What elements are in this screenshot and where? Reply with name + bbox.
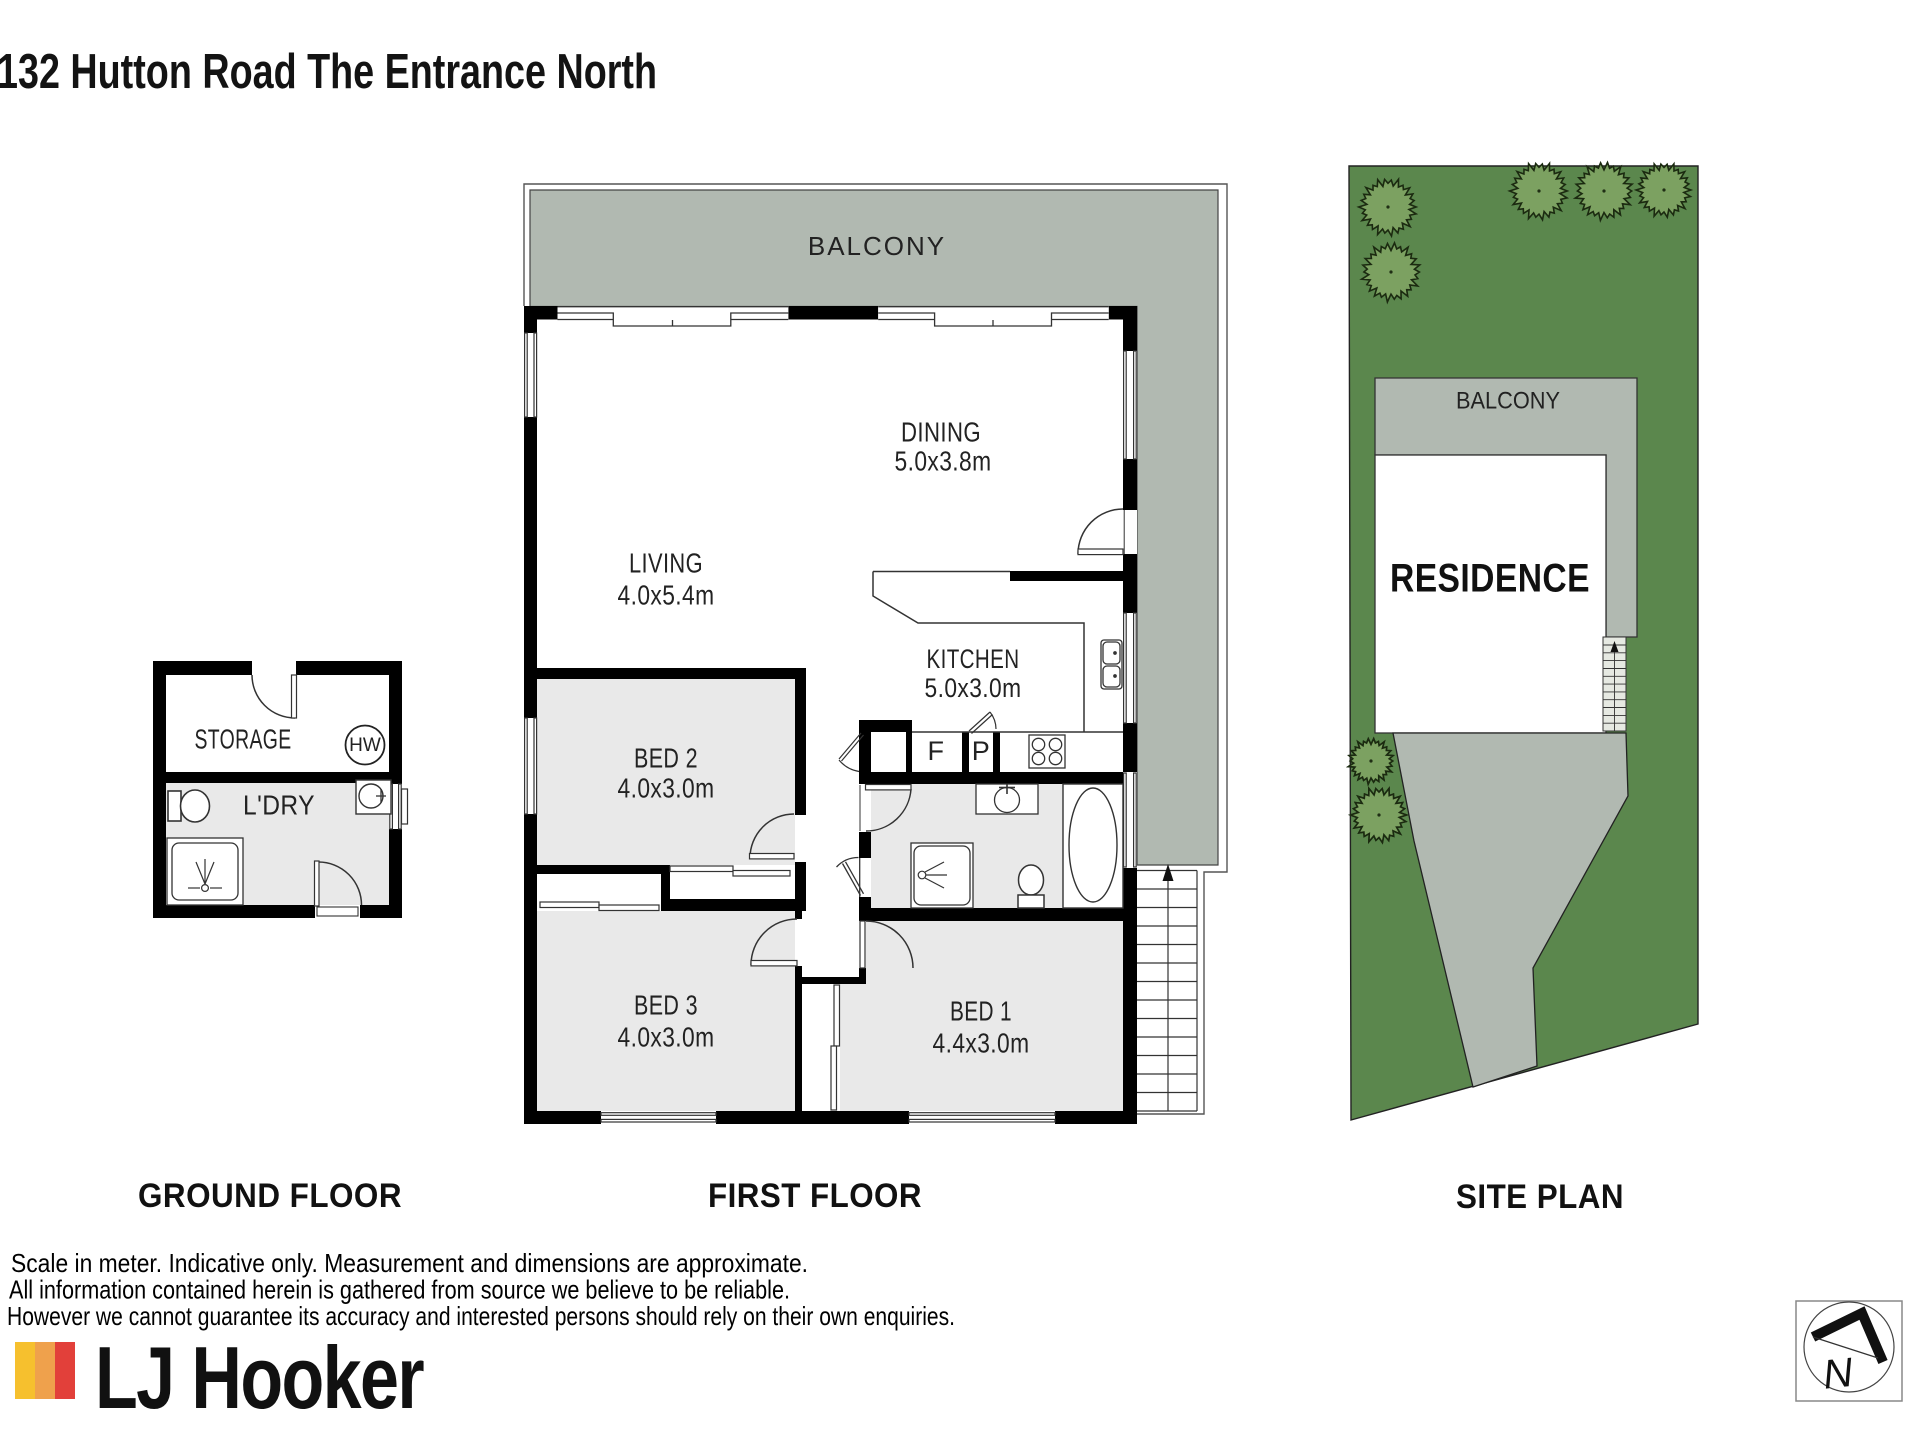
svg-text:4.0x3.0m: 4.0x3.0m xyxy=(618,772,715,803)
svg-text:All information contained here: All information contained herein is gath… xyxy=(9,1275,790,1305)
svg-text:BALCONY: BALCONY xyxy=(1456,387,1560,414)
svg-text:P: P xyxy=(972,736,991,766)
svg-text:Scale in meter. Indicative onl: Scale in meter. Indicative only. Measure… xyxy=(11,1248,808,1278)
svg-text:BED 3: BED 3 xyxy=(634,989,698,1020)
svg-text:L'DRY: L'DRY xyxy=(243,789,315,820)
svg-text:KITCHEN: KITCHEN xyxy=(927,644,1020,674)
svg-text:SITE PLAN: SITE PLAN xyxy=(1456,1178,1624,1216)
svg-text:HW: HW xyxy=(349,735,381,756)
svg-text:4.4x3.0m: 4.4x3.0m xyxy=(933,1027,1030,1058)
svg-text:However we cannot guarantee it: However we cannot guarantee its accuracy… xyxy=(7,1301,955,1331)
svg-text:LJ Hooker: LJ Hooker xyxy=(95,1328,424,1427)
svg-text:5.0x3.0m: 5.0x3.0m xyxy=(925,673,1022,703)
svg-text:GROUND FLOOR: GROUND FLOOR xyxy=(138,1177,402,1215)
svg-text:132 Hutton Road The Entrance N: 132 Hutton Road The Entrance North xyxy=(0,45,657,99)
svg-text:4.0x5.4m: 4.0x5.4m xyxy=(618,579,715,610)
svg-text:STORAGE: STORAGE xyxy=(195,723,292,754)
svg-text:4.0x3.0m: 4.0x3.0m xyxy=(618,1021,715,1052)
svg-text:BED 2: BED 2 xyxy=(634,742,698,773)
svg-text:DINING: DINING xyxy=(901,416,981,447)
svg-text:RESIDENCE: RESIDENCE xyxy=(1390,557,1590,601)
svg-text:FIRST FLOOR: FIRST FLOOR xyxy=(708,1177,922,1215)
svg-text:N: N xyxy=(1821,1349,1856,1398)
svg-text:LIVING: LIVING xyxy=(629,547,703,578)
svg-text:BED 1: BED 1 xyxy=(950,995,1012,1026)
svg-text:F: F xyxy=(928,736,945,766)
svg-text:5.0x3.8m: 5.0x3.8m xyxy=(895,445,992,476)
svg-text:BALCONY: BALCONY xyxy=(808,231,946,261)
